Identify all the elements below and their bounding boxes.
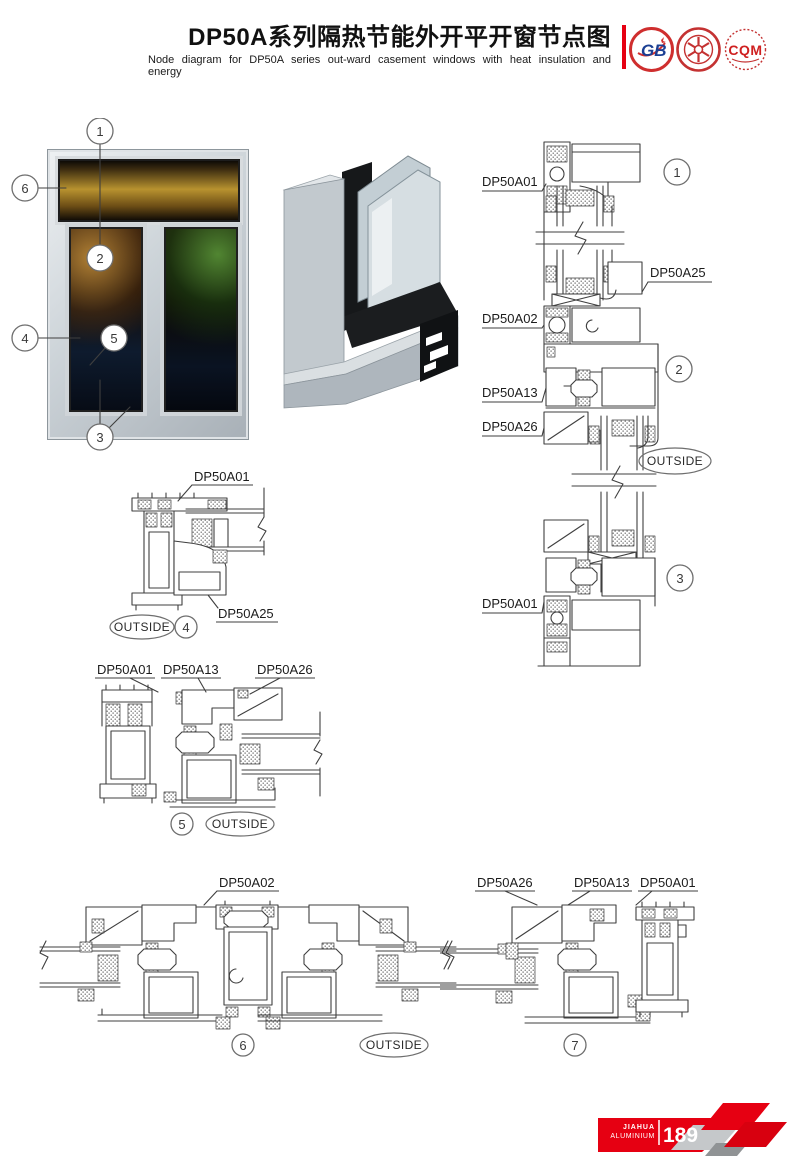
page-footer: JIAHUA ALUMINIUM 189 [560, 1090, 800, 1167]
svg-text:OUTSIDE: OUTSIDE [647, 454, 703, 468]
page-subtitle: Node diagram for DP50A series out-ward c… [148, 54, 611, 78]
footer-brand-line1: JIAHUA [623, 1124, 655, 1131]
svg-text:5: 5 [178, 817, 185, 832]
callout-2: 2 [87, 245, 113, 271]
detail4-label-dp50a25: DP50A25 [216, 606, 278, 622]
svg-text:2: 2 [96, 251, 103, 266]
detail-4-drawing: DP50A01 DP50A25 OUTSIDE 4 [80, 455, 380, 645]
svg-text:DP50A26: DP50A26 [257, 662, 313, 677]
svg-text:DP50A13: DP50A13 [574, 875, 630, 890]
detail5-callout: 5 [171, 813, 193, 835]
detail5-label-dp50a13: DP50A13 [161, 662, 221, 692]
svg-text:3: 3 [96, 430, 103, 445]
svg-text:2: 2 [675, 362, 682, 377]
svg-text:DP50A13: DP50A13 [482, 385, 538, 400]
detail4-label-dp50a01: DP50A01 [178, 469, 253, 501]
svg-text:4: 4 [182, 620, 189, 635]
svg-text:DP50A13: DP50A13 [163, 662, 219, 677]
svg-text:1: 1 [673, 165, 680, 180]
detail4-outside-tag: OUTSIDE [110, 615, 174, 639]
section7-callout: 7 [564, 1034, 586, 1056]
svg-text:6: 6 [239, 1038, 246, 1053]
profile-3d-render [272, 142, 482, 432]
vsection-label-dp50a02: DP50A02 [482, 311, 544, 328]
vsection-callout-3: 3 [667, 565, 693, 591]
detail5-outside-tag: OUTSIDE [206, 812, 274, 836]
svg-text:DP50A01: DP50A01 [482, 596, 538, 611]
svg-text:CQM: CQM [728, 42, 762, 58]
section7-label-dp50a26: DP50A26 [475, 875, 537, 905]
callout-5: 5 [101, 325, 127, 351]
detail4-callout: 4 [175, 616, 197, 638]
quality-seal-icon [675, 26, 722, 73]
header-divider [622, 25, 626, 69]
section-6-drawing: DP50A02 6 OUTSIDE [20, 865, 460, 1065]
cqm-logo-icon: CQM [722, 26, 769, 73]
vsection-label-dp50a01-top: DP50A01 [482, 174, 546, 191]
vsection-outside-tag: OUTSIDE [639, 448, 711, 474]
svg-text:DP50A02: DP50A02 [219, 875, 275, 890]
section-7-drawing: DP50A26 DP50A13 DP50A01 7 [440, 865, 800, 1065]
svg-text:DP50A01: DP50A01 [482, 174, 538, 189]
section6-label-dp50a02: DP50A02 [204, 875, 279, 905]
callout-3: 3 [87, 424, 113, 450]
callout-4: 4 [12, 325, 38, 351]
svg-text:DP50A01: DP50A01 [194, 469, 250, 484]
gb-certification-icon: GB [628, 26, 675, 73]
detail5-label-dp50a01: DP50A01 [95, 662, 158, 692]
elevation-callouts: 1 6 2 4 5 3 [8, 118, 265, 460]
vsection-label-dp50a26: DP50A26 [482, 419, 544, 436]
vsection-label-dp50a13: DP50A13 [482, 385, 546, 402]
svg-text:GB: GB [641, 41, 667, 60]
svg-text:DP50A26: DP50A26 [477, 875, 533, 890]
section6-callout: 6 [232, 1034, 254, 1056]
page-header: DP50A系列隔热节能外开平开窗节点图 Node diagram for DP5… [148, 24, 611, 78]
page-title: DP50A系列隔热节能外开平开窗节点图 [148, 24, 611, 52]
section6-outside-tag: OUTSIDE [360, 1033, 428, 1057]
section7-label-dp50a01: DP50A01 [636, 875, 698, 905]
svg-text:6: 6 [21, 181, 28, 196]
svg-text:DP50A25: DP50A25 [650, 265, 706, 280]
svg-text:3: 3 [676, 571, 683, 586]
vertical-section-drawing: DP50A01 DP50A25 DP50A02 DP50A13 DP50A26 … [480, 140, 800, 830]
callout-6: 6 [12, 175, 38, 201]
svg-text:DP50A02: DP50A02 [482, 311, 538, 326]
detail-5-drawing: DP50A01 DP50A13 DP50A26 5 OUTSIDE [70, 650, 390, 850]
svg-text:OUTSIDE: OUTSIDE [212, 817, 268, 831]
svg-text:OUTSIDE: OUTSIDE [114, 620, 170, 634]
svg-text:DP50A25: DP50A25 [218, 606, 274, 621]
vsection-label-dp50a25: DP50A25 [642, 265, 712, 292]
svg-text:DP50A01: DP50A01 [97, 662, 153, 677]
svg-text:1: 1 [96, 124, 103, 139]
svg-text:OUTSIDE: OUTSIDE [366, 1038, 422, 1052]
svg-text:DP50A26: DP50A26 [482, 419, 538, 434]
footer-page-number: 189 [663, 1124, 698, 1147]
footer-brand-line2: ALUMINIUM [610, 1133, 655, 1140]
svg-text:DP50A01: DP50A01 [640, 875, 696, 890]
vsection-callout-2: 2 [666, 356, 692, 382]
vsection-callout-1: 1 [664, 159, 690, 185]
svg-text:4: 4 [21, 331, 28, 346]
svg-text:5: 5 [110, 331, 117, 346]
vsection-label-dp50a01-bottom: DP50A01 [482, 596, 544, 613]
callout-1: 1 [87, 118, 113, 144]
svg-text:7: 7 [571, 1038, 578, 1053]
section7-label-dp50a13: DP50A13 [568, 875, 632, 905]
